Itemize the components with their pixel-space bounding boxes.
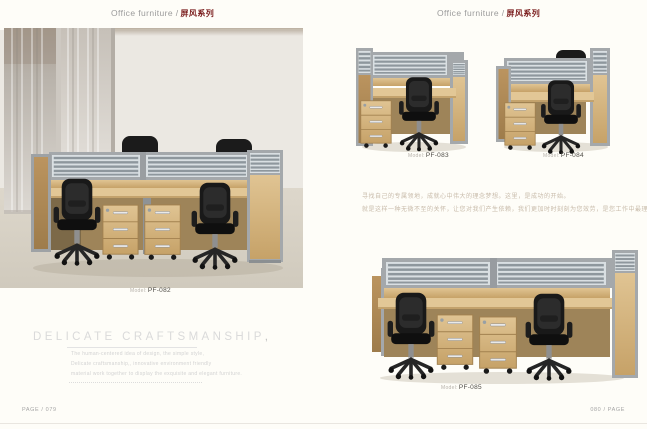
header-title-en: Office furniture / [437, 8, 505, 18]
model-label-pf082: Model:PF-082 [130, 287, 171, 294]
model-prefix: Model: [543, 153, 560, 159]
tagline-line-2: Delicate craftsmanship,, innovative envi… [71, 361, 211, 367]
model-prefix: Model: [408, 153, 425, 159]
workstation-photo-pf085 [372, 238, 640, 384]
catalog-spread: Office furniture /屏风系列 Office furniture … [0, 0, 647, 429]
model-prefix: Model: [441, 385, 458, 391]
right-page-header: Office furniture /屏风系列 [437, 8, 540, 19]
page-number-right: 080 / PAGE [590, 407, 625, 413]
headline-text: DELICATE CRAFTSMANSHIP [33, 331, 265, 343]
tagline-line-1: The human-centered idea of design, the s… [71, 351, 204, 357]
model-number: PF-082 [148, 287, 171, 294]
model-number: PF-085 [459, 384, 482, 391]
tagline-line-3: material work together to display the ex… [71, 371, 242, 377]
workstation-photo-pf082 [0, 28, 303, 288]
left-page-header: Office furniture /屏风系列 [111, 8, 214, 19]
header-title-zh: 屏风系列 [181, 9, 215, 18]
headline-title: DELICATE CRAFTSMANSHIP, [33, 331, 268, 343]
workstation-photo-pf083 [356, 44, 474, 154]
description-line-1: 寻找自己的专属领地，成就心中伟大的理念梦想。这里，是成功的开始。 [362, 191, 614, 204]
model-label-pf085: Model:PF-085 [441, 384, 482, 391]
model-number: PF-084 [561, 152, 584, 159]
model-prefix: Model: [130, 288, 147, 294]
headline-suffix: , [265, 331, 268, 343]
dotted-divider [69, 382, 202, 383]
header-title-en: Office furniture / [111, 8, 179, 18]
description-paragraph: 寻找自己的专属领地，成就心中伟大的理念梦想。这里，是成功的开始。 就是这样一种无… [362, 191, 614, 216]
page-number-left: PAGE / 079 [22, 407, 57, 413]
headline-underline [67, 347, 197, 348]
model-label-pf084: Model:PF-084 [543, 152, 584, 159]
description-line-2: 就是这样一种无微不至的关怀，让您对我们产生依赖，我们更加时时刻刻为您效劳，是您工… [362, 204, 614, 217]
page-bottom-edge [0, 423, 647, 424]
header-title-zh: 屏风系列 [507, 9, 541, 18]
model-label-pf083: Model:PF-083 [408, 152, 449, 159]
workstation-photo-pf084 [496, 44, 614, 154]
model-number: PF-083 [426, 152, 449, 159]
